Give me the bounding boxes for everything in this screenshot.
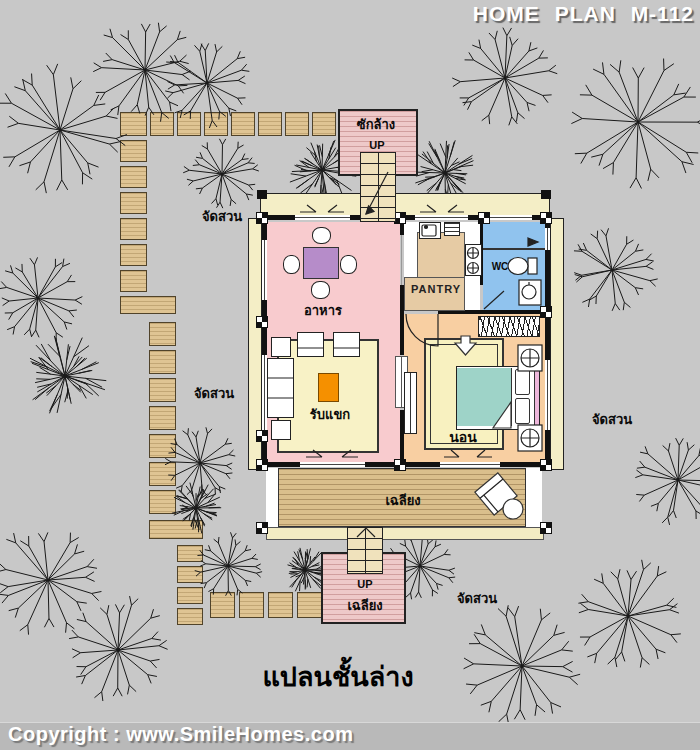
wc-label: WC (492, 261, 509, 272)
column-marker (540, 306, 552, 318)
bed-pillow (515, 398, 530, 424)
tree-icon (93, 23, 190, 122)
front-up-label: UP (357, 578, 372, 590)
plan-caption: แปลนชั้นล่าง (262, 655, 413, 698)
window-top-pantry (415, 215, 468, 220)
wall-segment (545, 250, 550, 360)
stepping-stone (177, 587, 203, 604)
room-boundary-line (401, 235, 402, 285)
window-band-right (550, 218, 564, 470)
dining-chair (283, 255, 300, 274)
copyright-bar: Copyright : www.SmileHomes.com (0, 722, 700, 750)
stepping-stone (149, 350, 176, 374)
porch-side-gap-left (266, 468, 278, 527)
stepping-stone (120, 112, 147, 136)
column-marker (256, 459, 268, 471)
bed-blanket (457, 368, 512, 426)
copyright-text: Copyright : www.SmileHomes.com (8, 723, 353, 746)
stepping-stone (120, 270, 147, 292)
tree-icon (635, 438, 700, 525)
stepping-stone (177, 545, 203, 562)
garden-label: จัดสวน (194, 383, 234, 404)
door-living-porch (300, 462, 365, 467)
porch-side-gap-right (526, 468, 542, 527)
column-marker (540, 212, 552, 224)
bed-headboard (534, 367, 539, 427)
wall-segment (545, 430, 550, 462)
living-label: รับแขก (310, 404, 350, 425)
tree-icon (195, 532, 262, 595)
tree-icon (0, 64, 127, 193)
window-top-dining (295, 215, 350, 220)
door-bedroom-porch (440, 462, 500, 467)
dining-table (303, 247, 339, 279)
porch-step-strip (266, 527, 544, 540)
stepping-stone (149, 490, 176, 514)
column-marker (540, 459, 552, 471)
column-marker (256, 430, 268, 442)
dish-rack (444, 222, 460, 236)
front-stairs (347, 527, 383, 574)
stepping-stone (120, 218, 147, 240)
column-marker (394, 459, 406, 471)
garden-label: จัดสวน (457, 588, 497, 609)
stepping-stone (177, 566, 203, 583)
kitchen-sink (419, 222, 441, 239)
porch-label: เฉลียง (385, 490, 420, 511)
armchair (297, 332, 324, 357)
rear-stairs (360, 152, 396, 222)
column-marker (540, 522, 552, 534)
rear-up-label: UP (369, 139, 384, 151)
bed-pillow (515, 369, 530, 395)
dining-chair (312, 227, 331, 244)
bed (456, 366, 540, 430)
stepping-stone (258, 112, 282, 136)
tree-icon (0, 257, 82, 340)
stepping-stone (239, 592, 264, 618)
band-corner-left (257, 190, 267, 199)
stepping-stone (120, 166, 147, 188)
stepping-stone (149, 322, 176, 346)
column-marker (256, 316, 268, 328)
tree-icon (464, 605, 581, 725)
garden-label: จัดสวน (202, 206, 242, 227)
wardrobe (478, 316, 540, 337)
tree-icon (452, 28, 557, 126)
stepping-stone (231, 112, 255, 136)
stepping-stone (297, 592, 322, 618)
window-left-dining (262, 240, 267, 300)
stepping-stone (120, 192, 147, 214)
bedroom-label: นอน (449, 426, 477, 448)
column-marker (256, 212, 268, 224)
stepping-stone (312, 112, 336, 136)
stepping-stone (149, 462, 176, 486)
stepping-stone (149, 434, 176, 458)
tree-icon (30, 336, 106, 413)
stepping-stone (149, 406, 176, 430)
tree-icon (574, 228, 658, 311)
stepping-stone (177, 112, 201, 136)
coffee-table (318, 373, 339, 402)
window-top-wc (490, 215, 532, 220)
dining-label: อาหาร (304, 300, 342, 321)
stepping-stone (120, 296, 176, 314)
tree-icon (571, 59, 700, 189)
tv-cabinet (404, 372, 417, 434)
stepping-stone (204, 112, 228, 136)
sofa-arm-block (271, 420, 291, 440)
stepping-stone (210, 592, 235, 618)
dining-chair (311, 281, 330, 299)
window-right-bedroom (545, 360, 550, 430)
stove (465, 244, 482, 276)
tree-icon (183, 139, 259, 208)
window-right-shower (545, 228, 550, 250)
garden-label: จัดสวน (592, 409, 632, 430)
shower-divider-line (483, 248, 545, 250)
stepping-stone (120, 244, 147, 266)
page-title: HOME PLAN M-112 (473, 2, 694, 26)
sofa (267, 358, 294, 418)
band-corner-right (541, 190, 551, 199)
floor-plan-canvas: ซักล้าง UP อาหาร รับแขก PANTRY WC นอน เฉ… (0, 0, 700, 750)
tree-icon (578, 560, 680, 668)
stepping-stone (268, 592, 293, 618)
stepping-stone (177, 608, 203, 625)
armchair (333, 332, 360, 357)
sofa-arm-block (271, 337, 291, 357)
stepping-stone (285, 112, 309, 136)
column-marker (478, 212, 490, 224)
laundry-label: ซักล้าง (357, 114, 395, 135)
stepping-stone (149, 378, 176, 402)
stepping-stone (120, 140, 147, 162)
stepping-stone (149, 520, 203, 539)
tree-icon (69, 596, 168, 701)
column-marker (256, 522, 268, 534)
pantry-label: PANTRY (411, 283, 461, 295)
stepping-stone (150, 112, 174, 136)
dining-chair (340, 255, 357, 274)
tree-icon (0, 532, 101, 634)
front-porch-label: เฉลียง (347, 595, 382, 616)
